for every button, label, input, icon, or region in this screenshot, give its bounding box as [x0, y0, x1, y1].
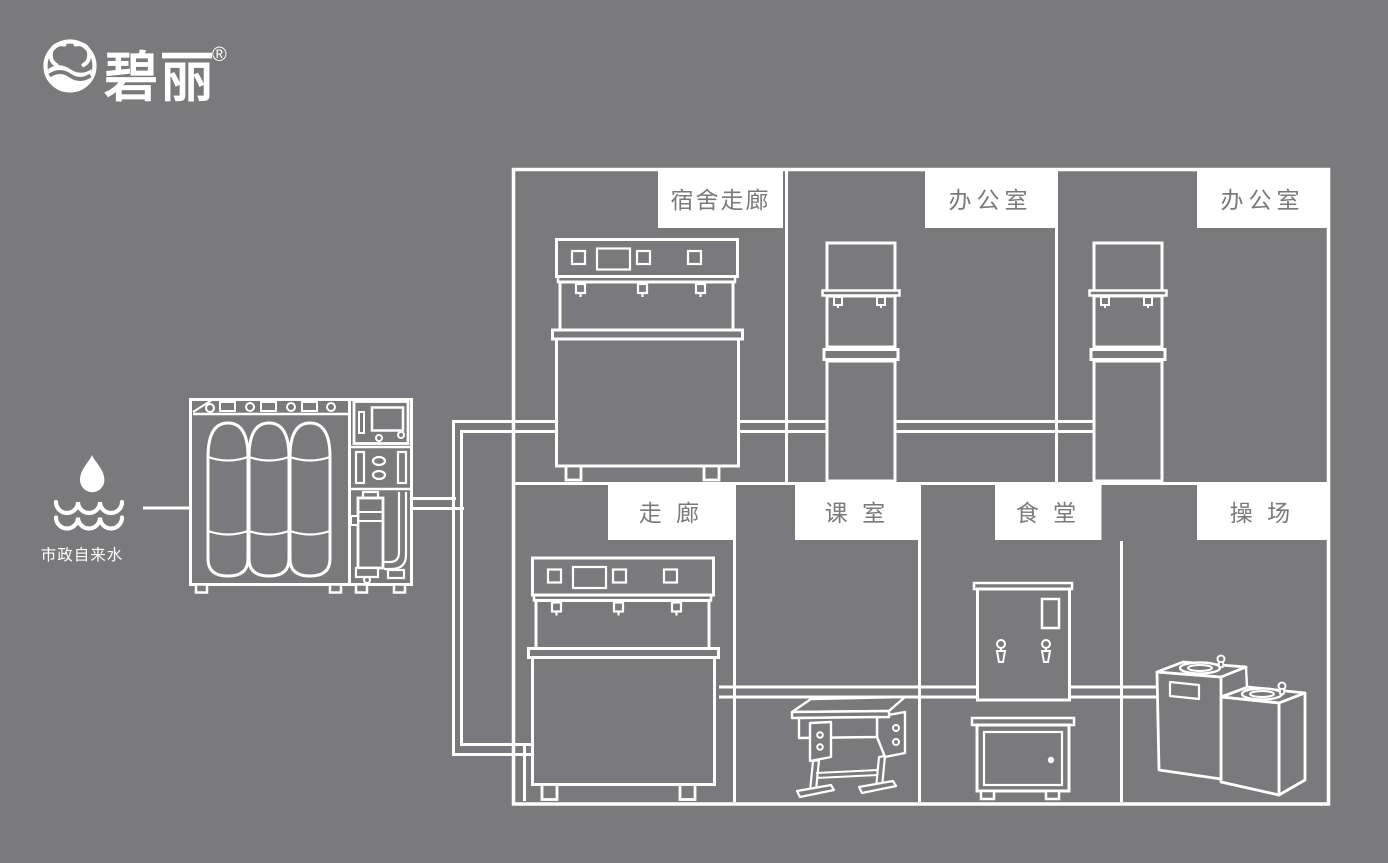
control-panel [354, 402, 408, 444]
canteen-water-boiler [972, 583, 1074, 799]
registered-trademark: ® [212, 44, 227, 66]
room-label-text: 走 廊 [639, 500, 703, 526]
school-desk [792, 697, 905, 797]
water-bowl-logo-icon [46, 42, 95, 91]
dispenser-dorm-corridor [553, 240, 743, 481]
water-system-diagram: 碧丽 ® 市政自来水 [0, 0, 1388, 863]
dispenser-office-1 [823, 243, 900, 481]
dispenser-corridor [529, 558, 719, 800]
ro-water-treatment-machine [191, 400, 412, 593]
room-label-canteen: 食 堂 [995, 485, 1102, 540]
room-label-text: 课 室 [825, 500, 889, 526]
room-label-office-2: 办公室 [1197, 171, 1328, 228]
tank-top-fittings [206, 402, 335, 412]
room-label-office-1: 办公室 [925, 171, 1056, 228]
water-source: 市政自来水 [41, 455, 124, 564]
room-label-playground: 操 场 [1197, 485, 1327, 540]
room-label-corridor: 走 廊 [608, 485, 735, 540]
dispenser-office-2 [1090, 243, 1167, 481]
room-label-dorm-corridor: 宿舍走廊 [658, 171, 783, 228]
water-drop-over-waves-icon [56, 455, 122, 529]
room-label-text: 办公室 [1221, 187, 1305, 213]
room-label-text: 食 堂 [1016, 500, 1080, 526]
brand-name: 碧丽 [104, 48, 216, 108]
room-label-text: 操 场 [1230, 500, 1294, 526]
brand-logo: 碧丽 ® [46, 42, 228, 109]
room-label-text: 办公室 [949, 187, 1033, 213]
room-label-text: 宿舍走廊 [671, 187, 771, 213]
filter-tanks [208, 423, 330, 576]
room-label-classroom: 课 室 [795, 485, 920, 540]
playground-drinking-fountain [1157, 656, 1305, 796]
water-source-label: 市政自来水 [41, 546, 124, 564]
diagram-canvas: 碧丽 ® 市政自来水 [0, 0, 1388, 863]
